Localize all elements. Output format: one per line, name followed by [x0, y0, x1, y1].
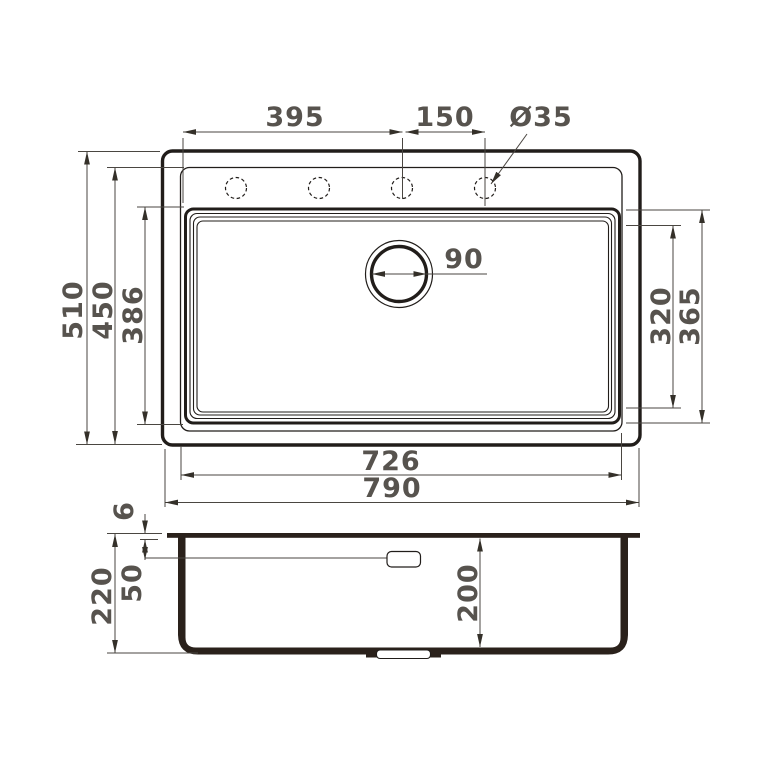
dim-label-790: 790 — [362, 473, 421, 504]
dim-label-450: 450 — [88, 280, 119, 339]
dim-bowl-depth-top-view: 386 — [118, 207, 184, 425]
dim-label-150: 150 — [415, 102, 474, 133]
dim-label-320: 320 — [646, 286, 677, 345]
drawing-canvas: 90 395 150 Ø35 510 — [0, 0, 768, 768]
dim-label-dia35: Ø35 — [509, 102, 573, 133]
dim-hole-diameter: Ø35 — [491, 102, 573, 184]
section-drain-flange — [377, 650, 431, 659]
dim-hole-spacing: 150 — [406, 102, 486, 206]
dim-label-90: 90 — [444, 244, 484, 275]
dim-label-386: 386 — [118, 285, 149, 344]
dim-label-50: 50 — [117, 563, 148, 603]
faucet-hole-2 — [309, 178, 330, 199]
sink-dimension-drawing: 90 395 150 Ø35 510 — [0, 0, 768, 768]
sink-outer-outline — [163, 151, 641, 445]
dim-overflow-offset: 50 — [117, 540, 148, 603]
dim-bowl-depth-section: 200 — [453, 539, 484, 648]
dim-label-365: 365 — [675, 286, 706, 345]
dim-bowl-inner-span: 320 — [626, 226, 681, 409]
section-view: 6 50 220 200 — [87, 501, 640, 658]
top-view: 90 395 150 Ø35 510 — [58, 102, 710, 507]
sink-deck-outline — [181, 168, 623, 432]
dim-label-220: 220 — [87, 566, 118, 625]
bowl-edge-outline-4 — [197, 221, 609, 412]
dim-label-510: 510 — [58, 280, 89, 339]
bowl-edge-outline-2 — [190, 214, 615, 419]
section-overflow-hole — [387, 552, 421, 568]
dim-label-6: 6 — [109, 501, 140, 521]
dim-label-395: 395 — [265, 102, 324, 133]
section-rim — [167, 533, 640, 538]
faucet-hole-1 — [226, 178, 247, 199]
dim-label-200: 200 — [453, 563, 484, 622]
